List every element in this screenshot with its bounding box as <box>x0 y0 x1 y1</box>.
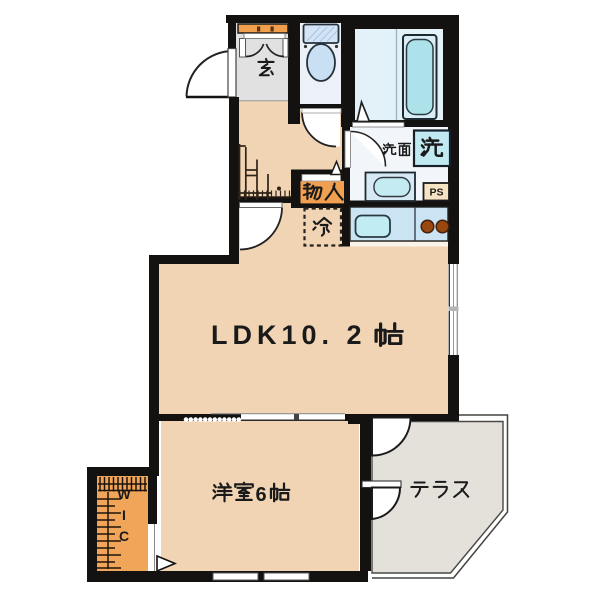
svg-text:PS: PS <box>429 187 443 199</box>
svg-text:LDK10. 2: LDK10. 2 <box>211 320 367 350</box>
svg-text:C: C <box>119 528 129 544</box>
svg-text:6: 6 <box>255 484 266 506</box>
svg-text:I: I <box>122 507 126 523</box>
svg-text:W: W <box>117 486 131 502</box>
